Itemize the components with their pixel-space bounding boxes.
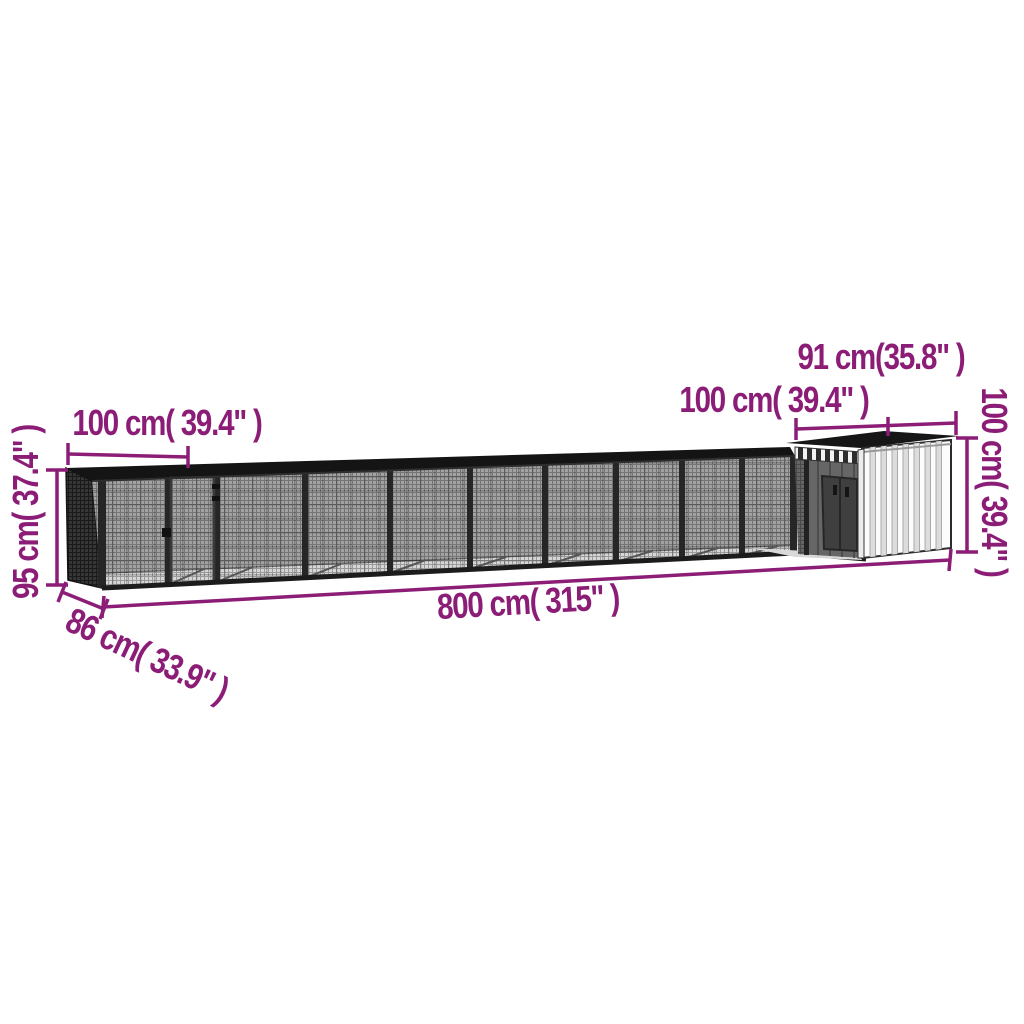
product-illustration (0, 0, 1024, 1024)
run-door-hinge-top (212, 484, 220, 489)
shed-door-handle-right (845, 487, 849, 497)
shed-door-handle-left (833, 485, 837, 495)
dim-line-run-height (46, 470, 68, 585)
product-dimension-diagram: 100 cm( 39.4" ) 95 cm( 37.4" ) 86 cm( 33… (0, 0, 1024, 1024)
shed-side-panel (858, 437, 951, 561)
dim-label-run-height: 95 cm( 37.4" ) (5, 425, 47, 599)
dim-label-shed-width: 91 cm(35.8" ) (797, 336, 964, 378)
shed-door (822, 476, 857, 551)
dim-label-shed-height: 100 cm( 39.4" ) (973, 387, 1015, 576)
run-rear-corner-post (804, 460, 809, 555)
dim-line-run-roof-width (68, 443, 188, 468)
shed-corner-trim (858, 449, 864, 558)
dim-label-shed-roof-depth: 100 cm( 39.4" ) (679, 379, 868, 421)
run-door-hinge-bottom (212, 496, 220, 501)
run-door-latch (162, 528, 171, 537)
wire-run (66, 447, 866, 588)
dim-label-run-roof-width: 100 cm( 39.4" ) (72, 402, 261, 444)
